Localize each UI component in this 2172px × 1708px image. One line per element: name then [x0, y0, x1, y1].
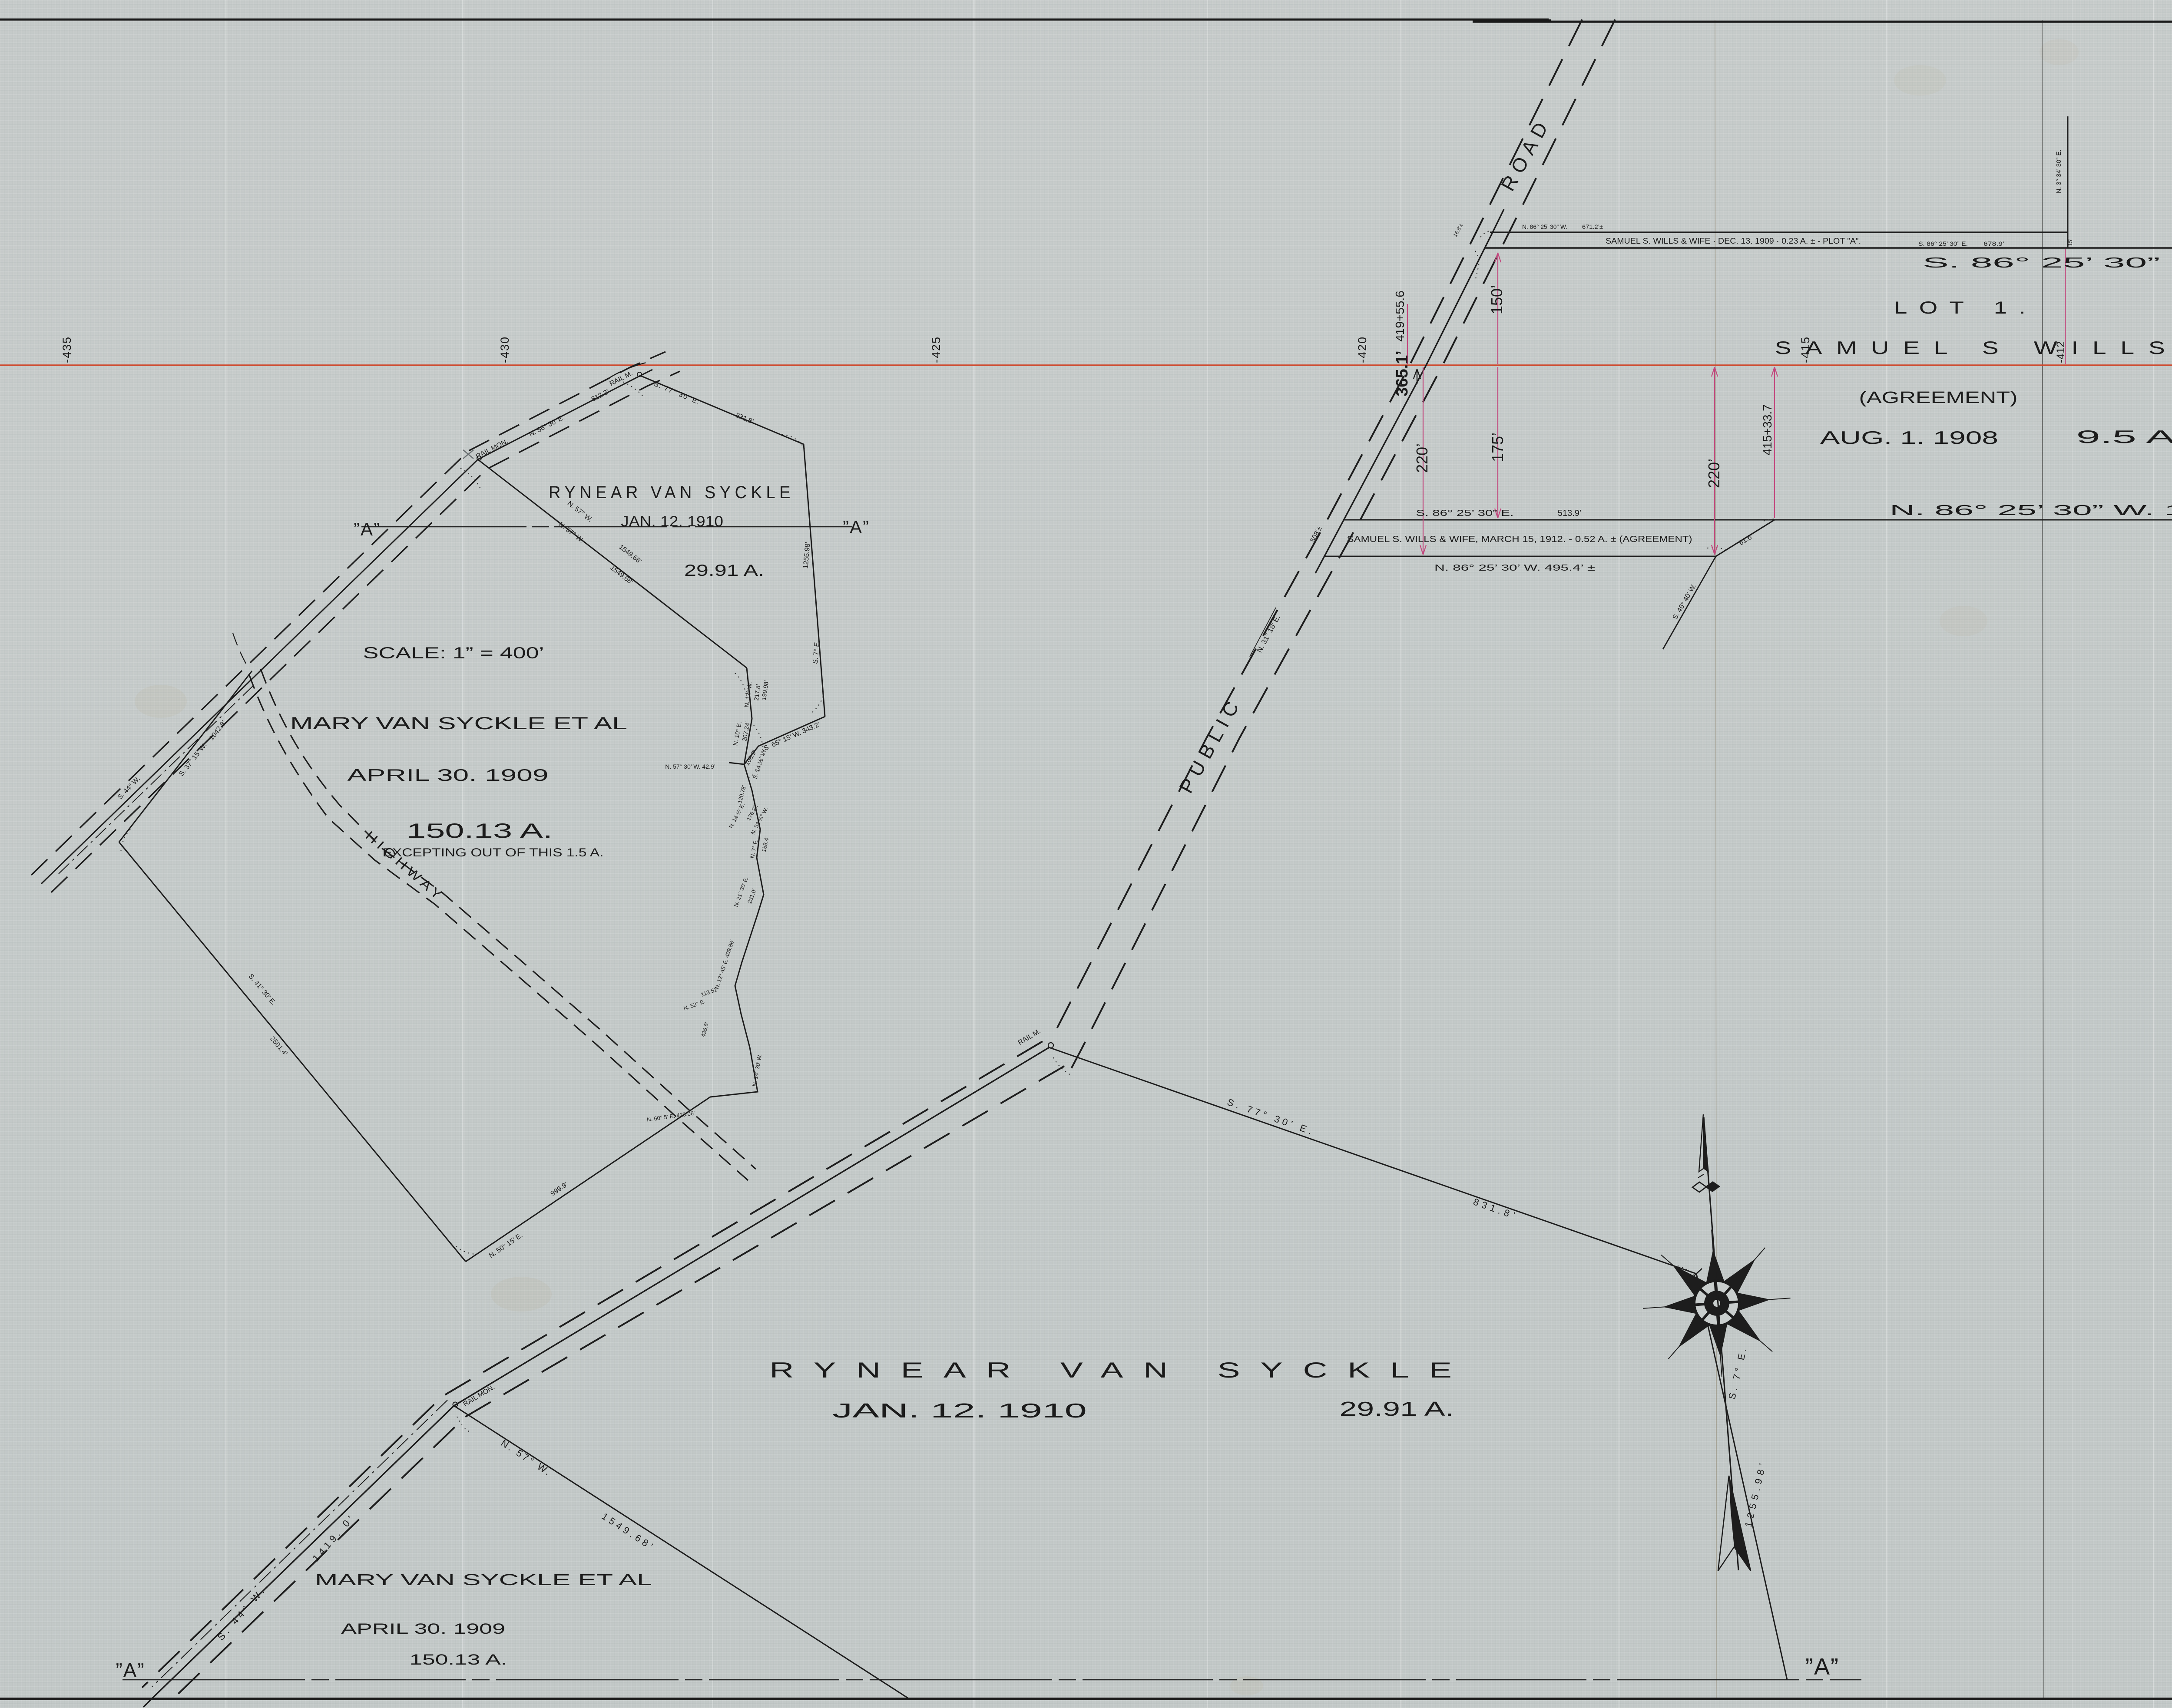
svg-text:671.2’±: 671.2’± — [1582, 223, 1603, 230]
svg-text:N. 86° 25’ 30” W. 1300’: N. 86° 25’ 30” W. 1300’ — [1890, 502, 2172, 518]
svg-text:SAMUEL S WILLS: SAMUEL S WILLS — [1775, 337, 2172, 358]
svg-text:RYNEAR VAN SYCKLE: RYNEAR VAN SYCKLE — [549, 483, 795, 502]
svg-text:S. 86° 25’ 30” E.: S. 86° 25’ 30” E. — [1416, 509, 1514, 518]
svg-text:MARY VAN SYCKLE ET AL: MARY VAN SYCKLE ET AL — [315, 1571, 652, 1589]
svg-text:419+55.6: 419+55.6 — [1393, 291, 1407, 342]
svg-text:150.13 A.: 150.13 A. — [410, 1652, 507, 1668]
svg-text:N. 86° 25’ 30” W.: N. 86° 25’ 30” W. — [1522, 223, 1567, 230]
svg-text:150.13 A.: 150.13 A. — [407, 819, 553, 842]
svg-text:”A”: ”A” — [1805, 1654, 1839, 1680]
svg-text:513.9’: 513.9’ — [1558, 509, 1582, 518]
svg-text:9.5 A.: 9.5 A. — [2076, 426, 2172, 447]
svg-text:AUG. 1. 1908: AUG. 1. 1908 — [1820, 427, 1998, 448]
svg-text:”A”: ”A” — [843, 517, 870, 537]
svg-text:(AGREEMENT): (AGREEMENT) — [1859, 389, 2018, 407]
svg-text:150’: 150’ — [1488, 285, 1506, 314]
svg-text:”A”: ”A” — [354, 519, 381, 539]
svg-text:RYNEAR VAN SYCKLE: RYNEAR VAN SYCKLE — [770, 1358, 1472, 1382]
svg-text:-435: -435 — [60, 336, 73, 363]
svg-text:365.1’: 365.1’ — [1393, 350, 1411, 396]
svg-text:15’: 15’ — [2067, 238, 2073, 246]
svg-text:SAMUEL S. WILLS & WIFE · DEC.: SAMUEL S. WILLS & WIFE · DEC. 13. 1909 ·… — [1606, 237, 1861, 245]
svg-text:APRIL 30. 1909: APRIL 30. 1909 — [341, 1621, 505, 1637]
svg-text:JAN. 12. 1910: JAN. 12. 1910 — [832, 1399, 1087, 1422]
svg-text:S. 86° 25’ 30” E. 1300’: S. 86° 25’ 30” E. 1300’ — [1923, 254, 2172, 271]
svg-text:SAMUEL S. WILLS & WIFE, MARCH: SAMUEL S. WILLS & WIFE, MARCH 15, 1912. … — [1347, 535, 1692, 544]
svg-text:LOT 1.: LOT 1. — [1894, 298, 2037, 317]
svg-text:415+33.7: 415+33.7 — [1761, 404, 1774, 456]
svg-text:N. 3° 34’ 30” E.: N. 3° 34’ 30” E. — [2055, 149, 2063, 193]
svg-text:EXCEPTING OUT OF THIS 1.5 A.: EXCEPTING OUT OF THIS 1.5 A. — [383, 846, 604, 859]
svg-text:APRIL 30. 1909: APRIL 30. 1909 — [348, 766, 549, 785]
svg-text:-420: -420 — [1356, 336, 1369, 363]
svg-text:-430: -430 — [498, 336, 511, 363]
svg-text:678.9’: 678.9’ — [1983, 240, 2004, 247]
svg-text:SCALE: 1” = 400’: SCALE: 1” = 400’ — [363, 644, 544, 662]
svg-text:220’: 220’ — [1413, 443, 1431, 473]
svg-text:S. 86° 25’ 30” E.: S. 86° 25’ 30” E. — [1918, 240, 1968, 247]
svg-text:175’: 175’ — [1489, 433, 1506, 462]
svg-text:220’: 220’ — [1705, 459, 1723, 488]
svg-text:-425: -425 — [930, 336, 943, 363]
svg-text:29.91 A.: 29.91 A. — [1340, 1397, 1454, 1420]
svg-text:MARY VAN SYCKLE ET AL: MARY VAN SYCKLE ET AL — [290, 714, 627, 733]
svg-text:JAN. 12. 1910: JAN. 12. 1910 — [621, 513, 723, 530]
svg-text:29.91 A.: 29.91 A. — [684, 562, 764, 579]
svg-text:N. 86° 25’ 30’ W. 495.4’ ±: N. 86° 25’ 30’ W. 495.4’ ± — [1434, 563, 1595, 573]
svg-text:”A”: ”A” — [116, 1659, 145, 1682]
svg-text:N. 57° 30’ W. 42.9’: N. 57° 30’ W. 42.9’ — [665, 763, 715, 770]
